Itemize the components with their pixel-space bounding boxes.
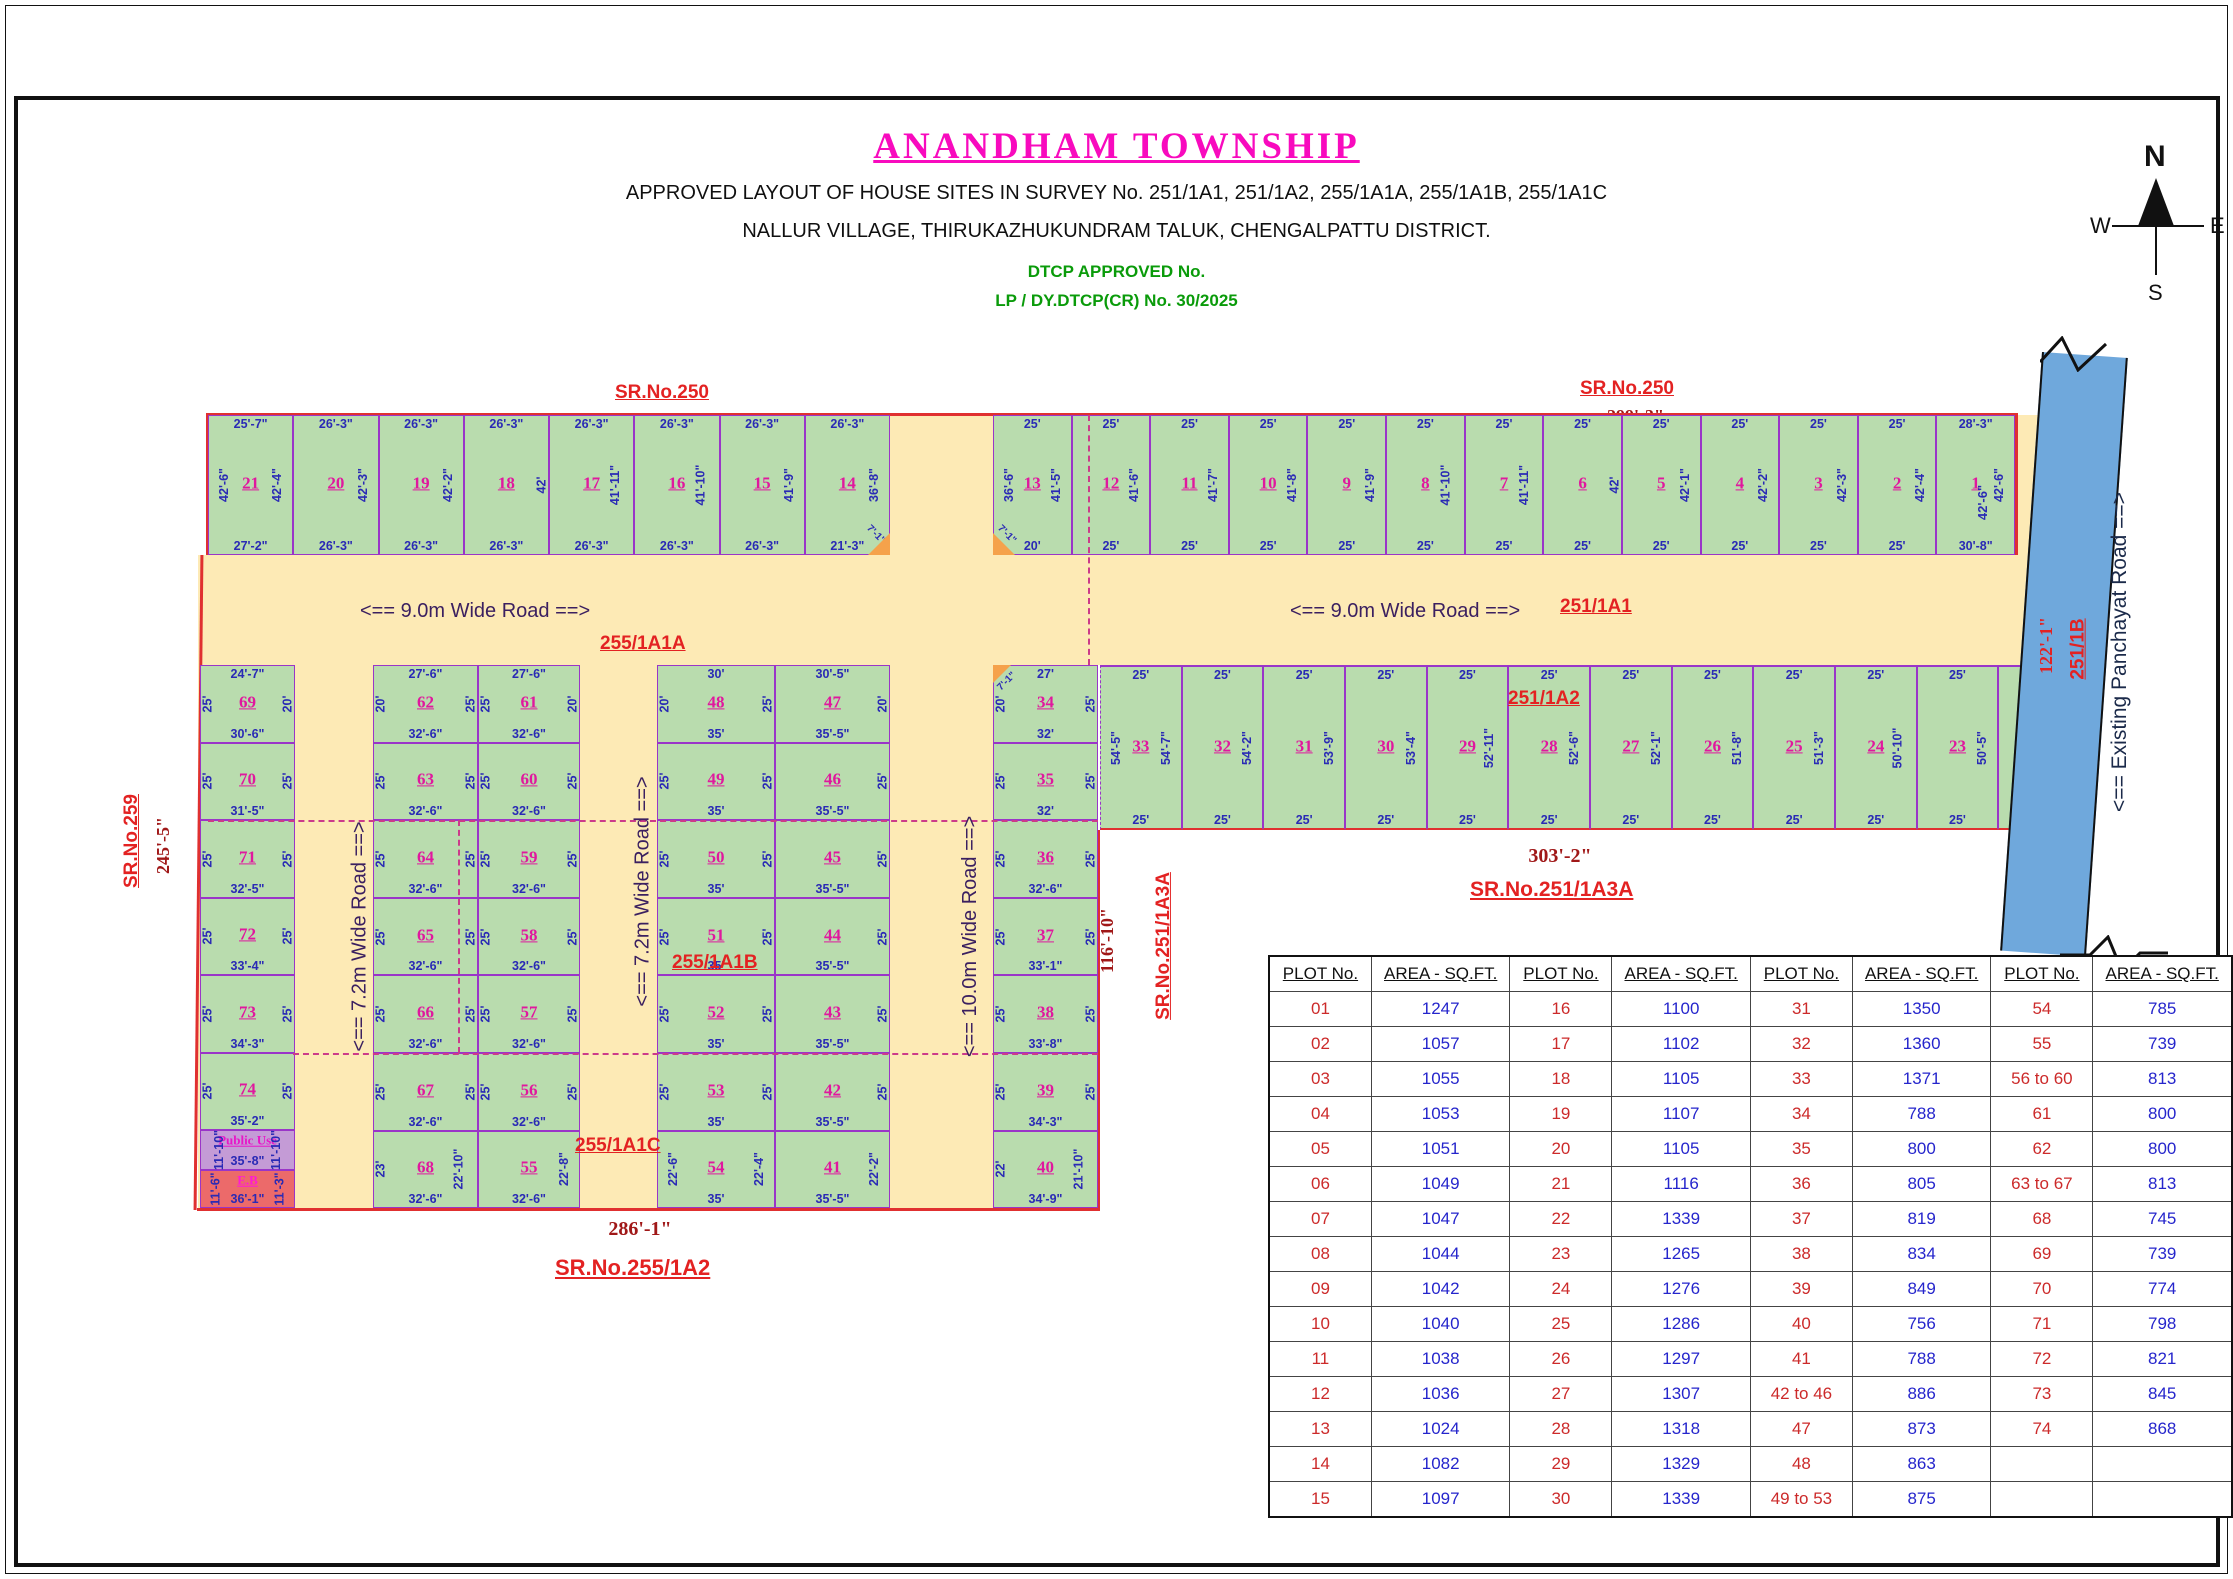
plot-no-cell: 33 [1750,1062,1852,1097]
plot-right-dim: 25' [1084,773,1098,790]
plot-no-cell: 55 [1991,1027,2093,1062]
area-cell: 1105 [1612,1132,1751,1167]
plot-right-dim: 22'-4" [752,1152,766,1186]
table-row: 0610492111163680563 to 67813 [1269,1167,2232,1202]
plot-number: 44 [776,925,889,945]
area-cell: 1055 [1371,1062,1510,1097]
plot-top-dim: 25' [1264,668,1344,682]
area-cell: 845 [2093,1377,2232,1412]
plot-17: 1726'-3"26'-3"41'-11" [549,415,634,555]
plot-right-dim: 42' [535,477,549,494]
plot-right-dim: 53'-4" [1404,731,1418,765]
plot-right-dim: 25' [566,773,580,790]
plot-top-dim: 25' [1859,417,1936,431]
plot-no-cell: 32 [1750,1027,1852,1062]
region-255-1a1c: 255/1A1C [575,1135,661,1157]
plot-10: 1025'25'41'-8" [1229,415,1308,555]
plot-15: 1526'-3"26'-3"41'-9" [720,415,805,555]
plot-number: 65 [374,925,477,945]
plot-bottom-dim: 25' [1308,539,1385,553]
corner-cut-13 [993,533,1015,555]
plot-7: 725'25'41'-11" [1465,415,1544,555]
plot-73: 7334'-3"25'25' [200,975,295,1053]
plot-bottom-dim: 25' [1544,539,1621,553]
plot-42: 4235'-5"25' [775,1053,890,1131]
plot-top-dim: 25' [1101,668,1181,682]
plot-no-cell: 62 [1991,1132,2093,1167]
area-cell: 821 [2093,1342,2232,1377]
sr251-1a3a-bottom-label: SR.No.251/1A3A [1470,878,1633,902]
region-251-1a1: 251/1A1 [1560,596,1632,618]
plot-top-dim: 26'-3" [550,417,633,431]
plot-left-dim: 22' [993,1161,1007,1178]
plot-bottom-dim: 25' [1264,813,1344,827]
area-cell: 1307 [1612,1377,1751,1412]
plot-61: 6127'-6"32'-6"20'25' [478,665,580,743]
plot-left-dim: 25' [200,695,214,712]
plot-bottom-dim: 35' [658,727,774,741]
plot-41: 4135'-5"22'-2" [775,1131,890,1209]
plot-bottom-dim: 31'-5" [201,804,294,818]
plot-right-dim: 42'-3" [356,468,370,502]
plot-46: 4635'-5"25' [775,743,890,821]
plot-right-dim: 42'-4" [270,468,284,502]
plot-left-dim: 25' [200,928,214,945]
table-row: 1110382612974178872821 [1269,1342,2232,1377]
plot-right-dim: 42'-3" [1835,468,1849,502]
plot-left-dim: 25' [478,851,492,868]
plot-63: 6332'-6"25'25' [373,743,478,821]
plot-right-dim: 52'-1" [1649,731,1663,765]
plot-23: 2325'25'50'-5" [1917,665,1999,830]
plot-number: 34 [994,692,1097,712]
plot-40: 4034'-9"21'-10"22' [993,1131,1098,1209]
plot-right-dim: 25' [1084,1006,1098,1023]
plot-no-cell: 72 [1991,1342,2093,1377]
plot-right-dim: 25' [1084,1083,1098,1100]
plot-bottom-dim: 25' [1183,813,1263,827]
plot-no-cell: 69 [1991,1237,2093,1272]
plot-53: 5335'25'25' [657,1053,775,1131]
area-cell [2093,1447,2232,1482]
area-cell: 1107 [1612,1097,1751,1132]
plot-bottom-dim: 26'-3" [294,539,377,553]
plot-area-table-body: 0112471611003113505478502105717110232136… [1269,992,2232,1518]
survey-dash-v-col64 [458,820,460,1053]
plot1-right-dim: 42'-6" [1975,485,1990,520]
plot-bottom-dim: 25' [1509,813,1589,827]
area-cell: 745 [2093,1202,2232,1237]
plot-right-dim: 50'-5" [1975,731,1989,765]
plot-39: 3934'-3"25'25' [993,1053,1098,1131]
plot-bottom-dim: 30'-6" [201,727,294,741]
plot-no-cell: 20 [1510,1132,1612,1167]
plot-left-dim: 54'-5" [1109,731,1123,765]
plot-bottom-dim: 35'-5" [776,1192,889,1206]
plot-right-dim: 25' [1084,851,1098,868]
plot-25: 2525'25'51'-3" [1753,665,1835,830]
plot-right-dim: 25' [566,928,580,945]
plot-bottom-dim: 32' [994,727,1097,741]
plot-no-cell: 26 [1510,1342,1612,1377]
plot-top-dim: 25' [1466,417,1543,431]
plot-bottom-dim: 25' [1230,539,1307,553]
plot-left-dim: 25' [657,928,671,945]
plot-no-cell: 29 [1510,1447,1612,1482]
plot-top-dim: 27'-6" [374,667,477,681]
plot-bottom-dim: 25' [1466,539,1543,553]
plot-top-dim: 26'-3" [380,417,463,431]
plot-bottom-dim: 32'-6" [479,804,579,818]
plot-bottom-dim: 25' [1918,813,1998,827]
plot-right-dim: 53'-9" [1322,731,1336,765]
area-cell: 834 [1852,1237,1991,1272]
area-cell [2093,1482,2232,1518]
site-border-bottom [197,1208,1100,1211]
plot-right-dim: 42'-2" [441,468,455,502]
plot-right-dim: 42'-6" [1992,468,2006,502]
plot-no-cell: 17 [1510,1027,1612,1062]
plot-top-dim: 25' [1428,668,1508,682]
plot-right-dim: 25' [876,1083,890,1100]
plot-right-dim: 25' [464,851,478,868]
area-cell: 1097 [1371,1482,1510,1518]
plot-right-dim: 42' [1607,477,1621,494]
plot-47: 4730'-5"35'-5"20' [775,665,890,743]
plot-bottom-dim: 33'-8" [994,1037,1097,1051]
plot-number: 42 [776,1080,889,1100]
plot-number: 46 [776,770,889,790]
plot-right-dim: 42'-2" [1756,468,1770,502]
plot-number: 45 [776,847,889,867]
plot-30: 3025'25'53'-4" [1345,665,1427,830]
plot-no-cell: 02 [1269,1027,1371,1062]
plot-number: 37 [994,925,1097,945]
plot-67: 6732'-6"25'25' [373,1053,478,1131]
plot-left-dim: 25' [200,850,214,867]
area-cell: 1286 [1612,1307,1751,1342]
plot-top-dim: 27'-6" [479,667,579,681]
plot-left-dim: 25' [200,1005,214,1022]
plot-number: 66 [374,1003,477,1023]
plot-no-cell: 61 [1991,1097,2093,1132]
plot-no-cell: 28 [1510,1412,1612,1447]
corner-cut-34 [993,665,1011,683]
plot-bottom-dim: 35'-5" [776,1037,889,1051]
plot-44: 4435'-5"25' [775,898,890,976]
plot-6: 625'25'42' [1543,415,1622,555]
plot-no-cell: 31 [1750,992,1852,1027]
plot-16: 1626'-3"26'-3"41'-10" [634,415,719,555]
area-cell: 805 [1852,1167,1991,1202]
plot-18: 1826'-3"26'-3"42' [464,415,549,555]
plot-left-dim: 25' [657,851,671,868]
area-cell: 1276 [1612,1272,1751,1307]
plot-no-cell: 05 [1269,1132,1371,1167]
plot-71: 7132'-5"25'25' [200,820,295,898]
plot-no-cell: 47 [1750,1412,1852,1447]
plot-bottom-dim: 25' [1101,813,1181,827]
area-cell: 1042 [1371,1272,1510,1307]
plot-right-dim: 25' [876,773,890,790]
plot-bottom-dim: 25' [1073,539,1150,553]
plot-bottom-dim: 35'-5" [776,804,889,818]
plot-no-header: PLOT No. [1510,956,1612,992]
plot-no-cell: 42 to 46 [1750,1377,1852,1412]
plot-top-dim: 25' [1308,417,1385,431]
plot-no-cell: 14 [1269,1447,1371,1482]
plot-9: 925'25'41'-9" [1307,415,1386,555]
plot-no-cell: 36 [1750,1167,1852,1202]
plot-right-dim: 20' [876,695,890,712]
plot-bottom-dim: 25' [1754,813,1834,827]
plot-bottom-dim: 25' [1702,539,1779,553]
plot-69: 6924'-7"30'-6"20'25' [200,665,295,743]
plot-bottom-dim: 32'-6" [374,1115,477,1129]
plot-left-dim: 25' [200,773,214,790]
plot-bottom-dim: 35'-5" [776,1115,889,1129]
table-row: 0910422412763984970774 [1269,1272,2232,1307]
area-cell: 785 [2093,992,2232,1027]
plot-no-cell: 70 [1991,1272,2093,1307]
plot-bottom-dim: 32'-6" [479,959,579,973]
plot-number: 52 [658,1003,774,1023]
plot-59: 5932'-6"25'25' [478,820,580,898]
plot-no-cell: 10 [1269,1307,1371,1342]
region-255-1a1a: 255/1A1A [600,633,686,655]
dim-122: 122'-1" [2036,617,2057,674]
plot-55: 5532'-6"22'-8" [478,1131,580,1209]
plot-right-dim: 36'-8" [867,468,881,502]
plot-no-cell: 68 [1991,1202,2093,1237]
plot-top-dim: 25' [994,417,1071,431]
plot-no-header: PLOT No. [1991,956,2093,992]
plot-number: 56 [479,1080,579,1100]
table-row: 1010402512864075671798 [1269,1307,2232,1342]
plot-top-dim: 25' [1623,417,1700,431]
table-row: 0710472213393781968745 [1269,1202,2232,1237]
plot-29: 2925'25'52'-11" [1427,665,1509,830]
plot-32: 3225'25'54'-2" [1182,665,1264,830]
plot-19: 1926'-3"26'-3"42'-2" [379,415,464,555]
plot-right-dim: 25' [464,928,478,945]
plot-no-cell: 03 [1269,1062,1371,1097]
plot-no-cell: 25 [1510,1307,1612,1342]
plot-bottom-dim: 34'-3" [994,1115,1097,1129]
plot-number: 57 [479,1003,579,1023]
plot-top-dim: 25' [1673,668,1753,682]
plot-right-dim: 25' [281,1083,295,1100]
plot-right-dim: 25' [761,851,775,868]
area-cell: 863 [1852,1447,1991,1482]
plot-no-cell: 18 [1510,1062,1612,1097]
plot-area-table-head: PLOT No.AREA - SQ.FT.PLOT No.AREA - SQ.F… [1269,956,2232,992]
plot-bottom-dim: 26'-3" [635,539,718,553]
plot-right-dim: 25' [1084,695,1098,712]
plot-bottom-dim: 32'-6" [994,882,1097,896]
plot-65: 6532'-6"25'25' [373,898,478,976]
plot-left-dim: 25' [478,1083,492,1100]
area-cell: 774 [2093,1272,2232,1307]
plot-bottom-dim: 25' [1428,813,1508,827]
plot-60: 6032'-6"25'25' [478,743,580,821]
plot-no-cell: 63 to 67 [1991,1167,2093,1202]
area-cell: 1371 [1852,1062,1991,1097]
plot-3: 325'25'42'-3" [1779,415,1858,555]
plot-number: 59 [479,847,579,867]
plot-top-dim: 25' [1754,668,1834,682]
plot-top-dim: 26'-3" [721,417,804,431]
plot-right-dim: 25' [761,928,775,945]
plot-66: 6632'-6"25'25' [373,975,478,1053]
dim-116: 116'-10" [1097,908,1118,973]
table-row: 02105717110232136055739 [1269,1027,2232,1062]
plot-right-dim: 25' [876,1006,890,1023]
plot-bottom-dim: 30'-8" [1937,539,2014,553]
plot-right-dim: 20' [566,695,580,712]
plot-number: 67 [374,1080,477,1100]
road72-right-label: <== 7.2m Wide Road ==> [632,776,655,1006]
plot-36: 3632'-6"25'25' [993,820,1098,898]
table-row: 0410531911073478861800 [1269,1097,2232,1132]
plot-bottom-dim: 35'-5" [776,882,889,896]
plot-left-dim: 25' [993,773,1007,790]
plot-left-dim: 25' [993,851,1007,868]
area-cell: 1116 [1612,1167,1751,1202]
plot-bottom-dim: 35' [658,1192,774,1206]
plot-27: 2725'25'52'-1" [1590,665,1672,830]
plot-no-cell: 01 [1269,992,1371,1027]
area-cell: 1339 [1612,1202,1751,1237]
plot-top-dim: 25' [1780,417,1857,431]
plot-top-dim: 25' [1387,417,1464,431]
area-cell: 813 [2093,1167,2232,1202]
plot-top-dim: 24'-7" [201,667,294,681]
plot-number: 48 [658,692,774,712]
plot-68: 6832'-6"22'-10"23' [373,1131,478,1209]
plot-number: 38 [994,1003,1097,1023]
plot-70: 7031'-5"25'25' [200,743,295,821]
plot-right-dim: 11'-3" [272,1172,286,1205]
area-cell: 1044 [1371,1237,1510,1272]
plot-bottom-dim: 27'-2" [209,539,292,553]
plot-no-cell: 08 [1269,1237,1371,1272]
plot-right-dim: 41'-6" [1127,468,1141,502]
plot-top-dim: 26'-3" [294,417,377,431]
plot-bottom-dim: 32'-6" [479,1037,579,1051]
plot-right-dim: 25' [876,851,890,868]
area-cell: 1102 [1612,1027,1751,1062]
plot-no-cell: 19 [1510,1097,1612,1132]
area-cell: 873 [1852,1412,1991,1447]
plot-bottom-dim: 26'-3" [721,539,804,553]
plot-49: 4935'25'25' [657,743,775,821]
road9-left-label: <== 9.0m Wide Road ==> [360,600,590,623]
region-251-1b: 251/1B [2068,618,2090,679]
plot-right-dim: 41'-5" [1049,468,1063,502]
plot-12: 1225'25'41'-6" [1072,415,1151,555]
area-cell: 1047 [1371,1202,1510,1237]
plot-bottom-dim: 25' [1780,539,1857,553]
site-border-top-right [2015,413,2018,555]
plot-bottom-dim: 25' [1623,539,1700,553]
area-cell: 875 [1852,1482,1991,1518]
plot-bottom-dim: 26'-3" [380,539,463,553]
plot-bottom-dim: 33'-1" [994,959,1097,973]
plot-left-dim: 25' [373,1083,387,1100]
plot-right-dim: 41'-7" [1206,468,1220,502]
plot-top-dim: 25' [1346,668,1426,682]
plot-no-header: PLOT No. [1269,956,1371,992]
plot-bottom-dim: 32'-5" [201,882,294,896]
plot-right-dim: 22'-2" [867,1152,881,1186]
area-cell: 800 [2093,1132,2232,1167]
plot-right-dim: 52'-11" [1482,727,1496,767]
plot-bottom-dim: 35' [658,1037,774,1051]
plot-bottom-dim: 25' [1151,539,1228,553]
plot-54: 5435'22'-4"22'-6" [657,1131,775,1209]
plot-4: 425'25'42'-2" [1701,415,1780,555]
plot-bottom-dim: 25' [1591,813,1671,827]
plot-bottom-dim: 35' [658,804,774,818]
plot-right-dim: 25' [281,850,295,867]
plot-no-cell: 07 [1269,1202,1371,1237]
area-cell: 798 [2093,1307,2232,1342]
table-row: 0810442312653883469739 [1269,1237,2232,1272]
area-cell: 739 [2093,1237,2232,1272]
table-row: 12103627130742 to 4688673845 [1269,1377,2232,1412]
plot-bottom-dim: 26'-3" [465,539,548,553]
plot-right-dim: 41'-9" [782,468,796,502]
plot-number: 50 [658,847,774,867]
plot-left-dim: 25' [478,695,492,712]
plot-top-dim: 25'-7" [209,417,292,431]
plot-no-cell: 54 [1991,992,2093,1027]
plot-43: 4335'-5"25' [775,975,890,1053]
table-row: 15109730133949 to 53875 [1269,1482,2232,1518]
plot-no-cell: 34 [1750,1097,1852,1132]
table-row: 0510512011053580062800 [1269,1132,2232,1167]
plot-21: 2125'-7"27'-2"42'-4"42'-6" [208,415,293,555]
plot-no-cell: 23 [1510,1237,1612,1272]
plot-top-dim: 25' [1230,417,1307,431]
plot-public-use: Public Use35'-8"11'-10"11'-10" [200,1130,295,1170]
plot-right-dim: 25' [464,695,478,712]
plot-right-dim: 25' [566,851,580,868]
area-cell: 1339 [1612,1482,1751,1518]
plot-no-cell: 13 [1269,1412,1371,1447]
area-cell: 1360 [1852,1027,1991,1062]
plot-right-dim: 25' [876,928,890,945]
plot-left-dim: 25' [993,1083,1007,1100]
plot-right-dim: 41'-9" [1363,468,1377,502]
plot-right-dim: 21'-10" [1072,1149,1086,1190]
sr251-1a3a-side-label: SR.No.251/1A3A [1153,872,1175,1020]
area-cell: 1100 [1612,992,1751,1027]
plot-left-dim: 20' [373,695,387,712]
plot-2: 225'25'42'-4" [1858,415,1937,555]
plot-top-dim: 25' [1702,417,1779,431]
plot-right-dim: 25' [566,1006,580,1023]
area-cell: 886 [1852,1377,1991,1412]
road9-right-label: <== 9.0m Wide Road ==> [1290,600,1520,623]
area-cell: 1024 [1371,1412,1510,1447]
plot-no-cell: 09 [1269,1272,1371,1307]
plot-no-cell: 04 [1269,1097,1371,1132]
plot-top-dim: 26'-3" [465,417,548,431]
plot-bottom-dim: 32' [994,804,1097,818]
plot-no-cell: 38 [1750,1237,1852,1272]
